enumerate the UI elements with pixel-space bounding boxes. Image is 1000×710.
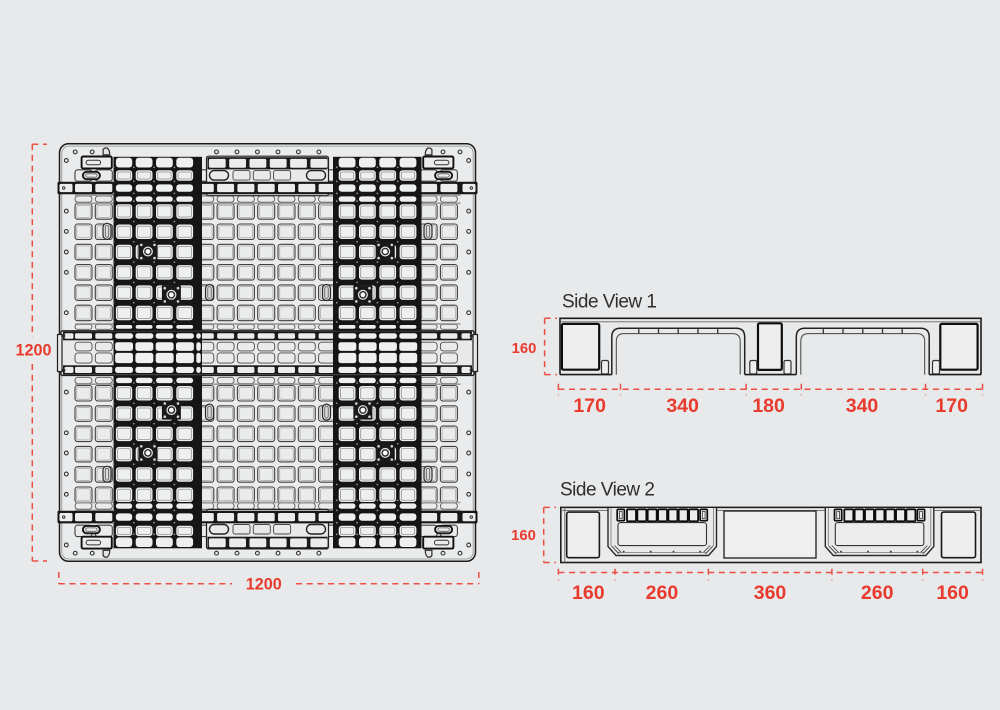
svg-text:160: 160 [511, 528, 536, 544]
svg-text:340: 340 [846, 395, 879, 417]
svg-text:360: 360 [754, 582, 787, 604]
svg-text:1200: 1200 [246, 576, 282, 594]
svg-text:260: 260 [646, 582, 679, 604]
svg-text:160: 160 [572, 582, 605, 604]
svg-text:160: 160 [512, 341, 537, 357]
svg-text:180: 180 [752, 395, 785, 417]
svg-text:160: 160 [936, 582, 969, 604]
svg-text:1200: 1200 [15, 342, 51, 360]
svg-text:Side View 2: Side View 2 [560, 480, 655, 501]
svg-text:260: 260 [861, 582, 894, 604]
svg-text:Side View 1: Side View 1 [562, 292, 657, 313]
svg-text:170: 170 [935, 395, 968, 417]
svg-text:170: 170 [573, 395, 606, 417]
svg-text:340: 340 [666, 395, 699, 417]
